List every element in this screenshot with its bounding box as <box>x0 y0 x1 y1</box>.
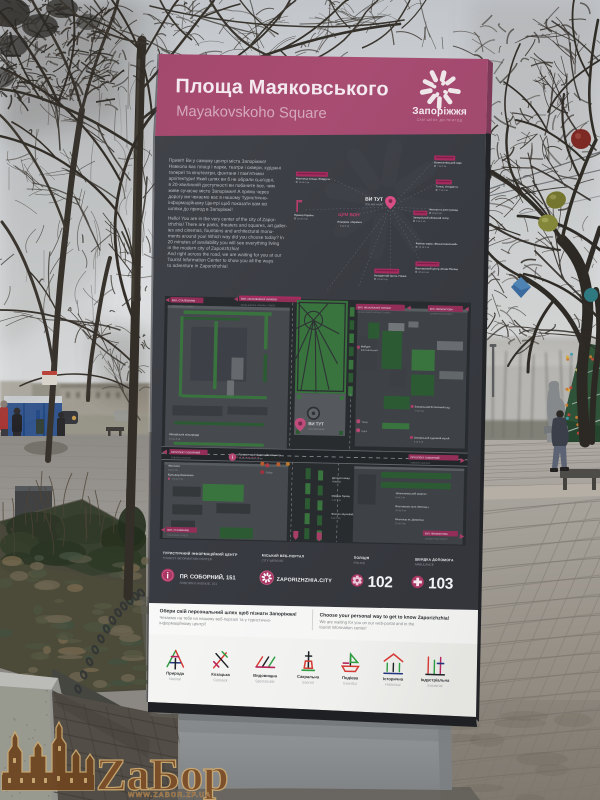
svg-text:Історична: Історична <box>383 676 404 682</box>
svg-text:ЦУМ ВОН: ЦУМ ВОН <box>338 212 360 217</box>
svg-text:Spectacular: Spectacular <box>255 679 275 684</box>
svg-text:Сакральна: Сакральна <box>297 674 320 680</box>
svg-text:10 хв 3 хв: 10 хв 3 хв <box>377 279 388 281</box>
svg-text:Прапор України: Прапор України <box>294 214 314 217</box>
svg-text:7 хв 2 хв: 7 хв 2 хв <box>439 190 449 192</box>
svg-text:Natural: Natural <box>169 677 181 681</box>
svg-text:шляхи до пригод в Запоріжжі!: шляхи до пригод в Запоріжжі! <box>168 206 233 212</box>
svg-text:WWW.ZABOR.ZP.UA: WWW.ZABOR.ZP.UA <box>128 792 211 799</box>
svg-text:POLICE: POLICE <box>354 561 365 565</box>
svg-text:Фонтан та алея троянд: Фонтан та алея троянд <box>429 208 458 212</box>
svg-text:Козацька: Козацька <box>211 672 230 677</box>
svg-text:12 хв 4 хв: 12 хв 4 хв <box>419 247 430 249</box>
svg-text:Концертний зал ім. Глінки: Концертний зал ім. Глінки <box>374 274 407 278</box>
svg-text:Eventful: Eventful <box>343 682 357 686</box>
svg-text:Фонтанна площа «Райдуга»: Фонтанна площа «Райдуга» <box>296 177 331 181</box>
svg-text:20 хв 5 хв: 20 хв 5 хв <box>418 272 429 274</box>
svg-text:103: 103 <box>428 575 454 593</box>
svg-text:Готель «Інтурист»: Готель «Інтурист» <box>436 185 459 188</box>
svg-text:САМ ШЛЯХ ДО ПРИГОД: САМ ШЛЯХ ДО ПРИГОД <box>417 118 463 123</box>
svg-text:YOU ARE HERE: YOU ARE HERE <box>365 203 383 206</box>
svg-text:7 хв 2 хв: 7 хв 2 хв <box>437 166 447 168</box>
svg-text:Historical: Historical <box>385 683 400 687</box>
svg-text:Індустріальна: Індустріальна <box>421 677 450 683</box>
svg-text:Mayakovskoho Square: Mayakovskoho Square <box>176 104 327 122</box>
svg-text:ВИ ТУТ: ВИ ТУТ <box>365 197 383 203</box>
svg-text:102: 102 <box>367 574 392 592</box>
svg-text:AMBULANCE: AMBULANCE <box>415 562 434 566</box>
svg-text:ПОЛІЦІЯ: ПОЛІЦІЯ <box>354 556 370 560</box>
svg-text:Sacred: Sacred <box>302 680 314 684</box>
svg-text:Універмаг «Україна»: Універмаг «Україна» <box>337 221 363 224</box>
svg-text:9 хв 3 хв: 9 хв 3 хв <box>416 221 426 223</box>
svg-text:Запорізький обласний театр: Запорізький обласний театр <box>413 216 449 220</box>
svg-text:16 хв 4 хв: 16 хв 4 хв <box>297 218 308 220</box>
svg-text:10 хв 3 хв: 10 хв 3 хв <box>299 182 310 184</box>
svg-text:CITY WEBSITE: CITY WEBSITE <box>262 559 284 564</box>
svg-text:8 хв 3 хв: 8 хв 3 хв <box>432 213 442 215</box>
svg-text:Площа Маяковського: Площа Маяковського <box>175 75 389 100</box>
svg-text:to adventure in Zaporizhzhia!: to adventure in Zaporizhzhia! <box>167 263 228 269</box>
svg-text:Вознесенівський парк: Вознесенівський парк <box>434 161 462 164</box>
svg-text:Industrial: Industrial <box>427 684 442 688</box>
svg-text:9 хв 3 хв: 9 хв 3 хв <box>340 226 350 228</box>
svg-text:i: i <box>166 570 169 580</box>
svg-text:Видовищна: Видовищна <box>253 673 278 679</box>
svg-text:Природа: Природа <box>166 670 185 675</box>
svg-text:Подієва: Подієва <box>342 675 359 680</box>
svg-text:Запоріжжя: Запоріжжя <box>412 106 467 118</box>
svg-text:Cossack: Cossack <box>213 678 227 682</box>
